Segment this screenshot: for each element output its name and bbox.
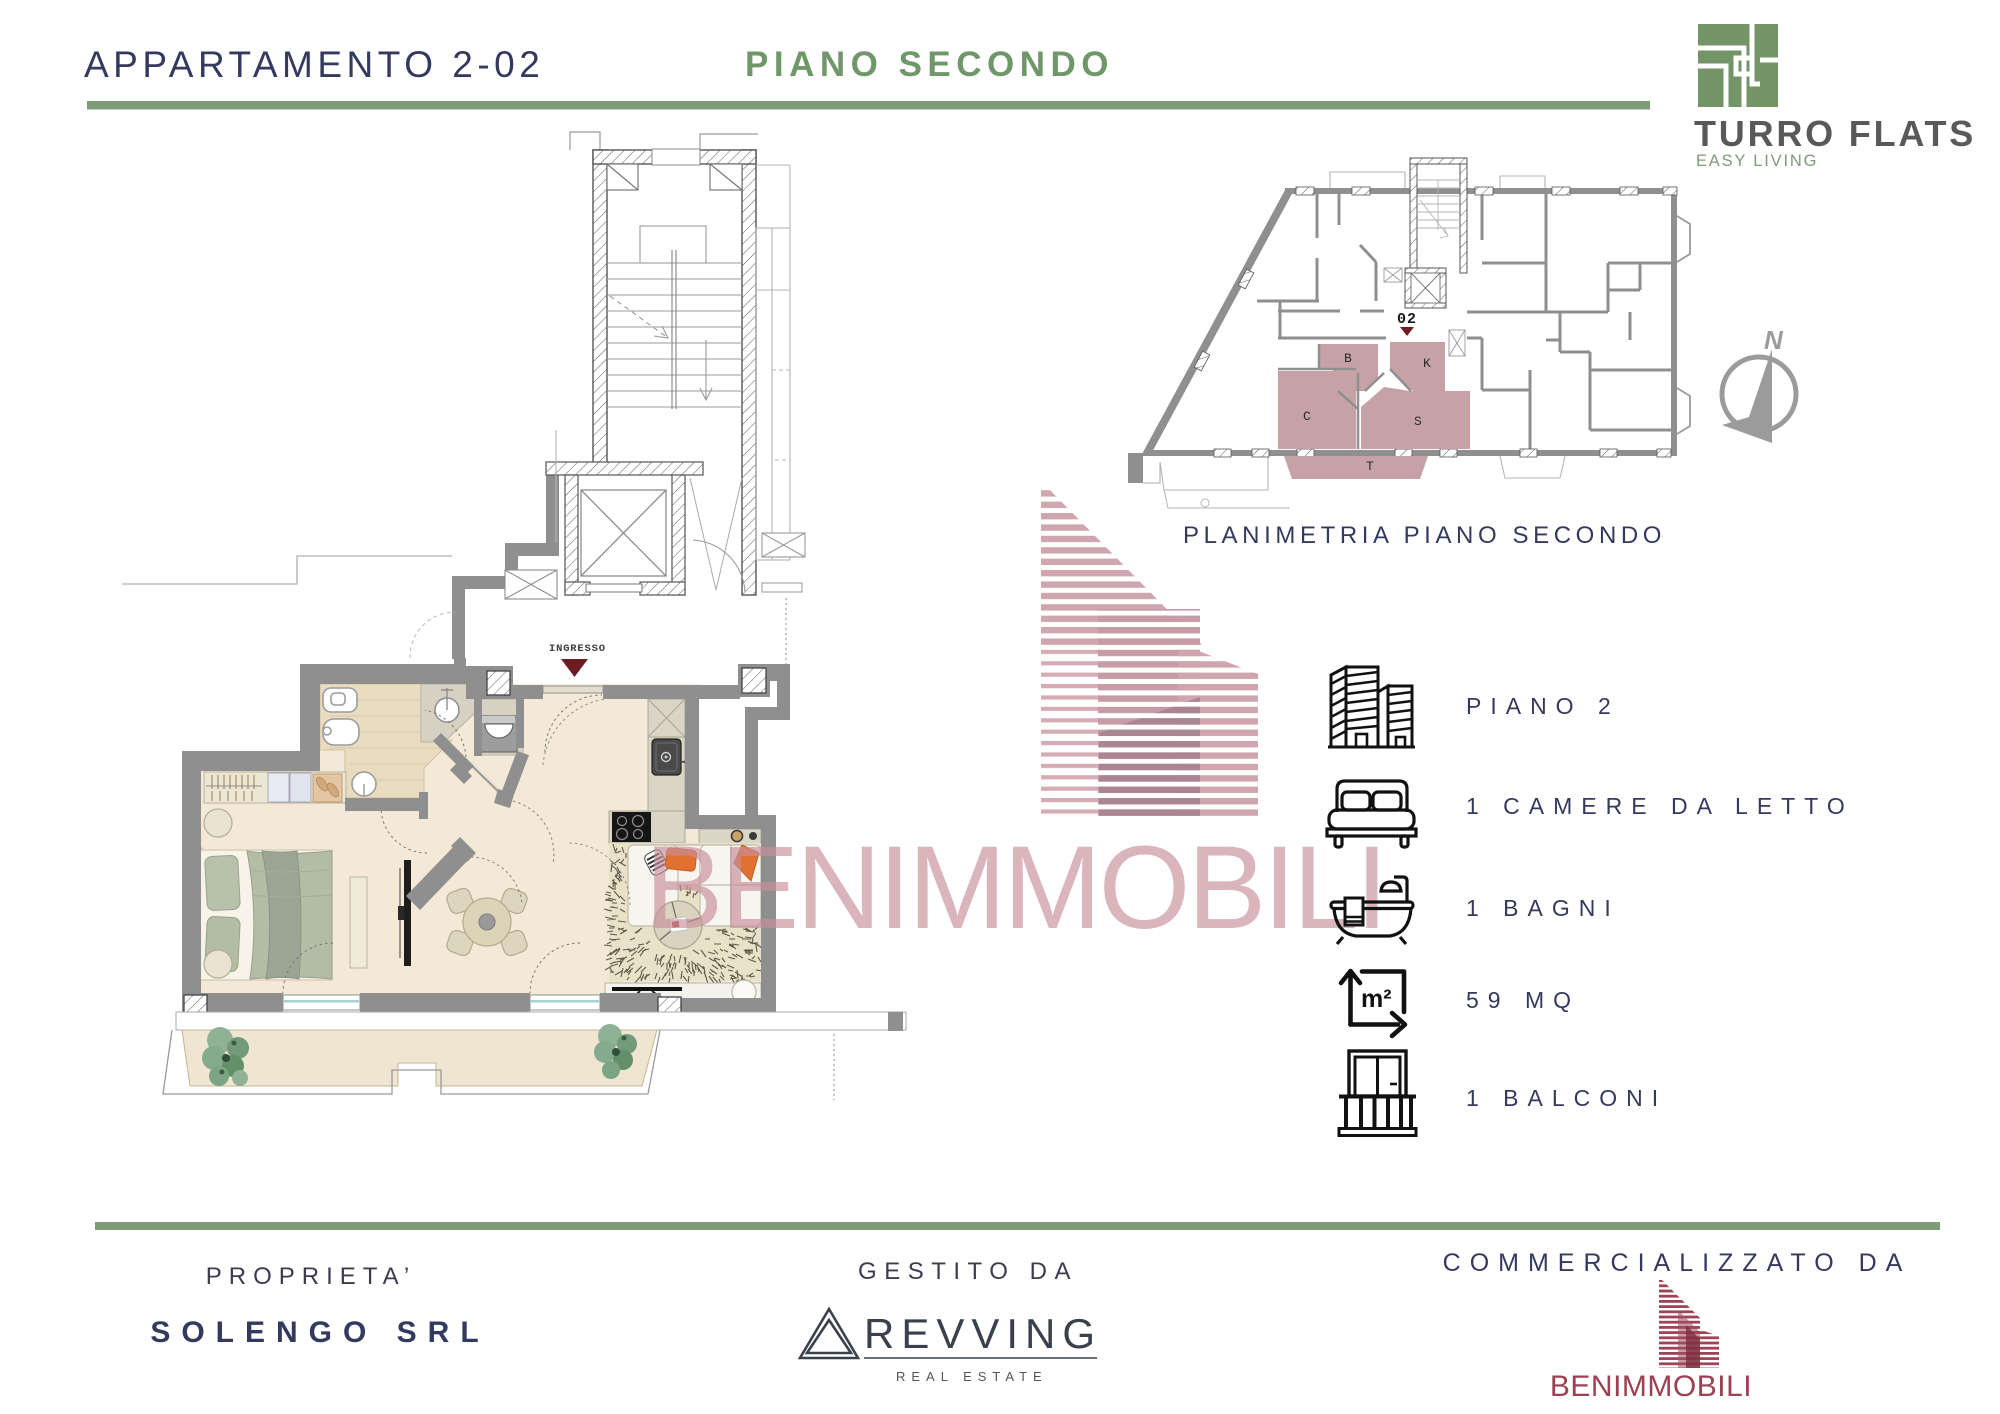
svg-text:GESTITO DA: GESTITO DA [858,1258,1078,1285]
svg-text:1 BAGNI: 1 BAGNI [1466,895,1620,921]
svg-text:TURRO FLATS: TURRO FLATS [1694,113,1976,154]
svg-text:m²: m² [1361,985,1392,1013]
svg-text:REVVING: REVVING [864,1310,1102,1357]
svg-text:PLANIMETRIA PIANO SECONDO: PLANIMETRIA PIANO SECONDO [1183,522,1666,549]
svg-text:BENIMMOBILI: BENIMMOBILI [1550,1370,1752,1403]
svg-text:INGRESSO: INGRESSO [549,643,606,655]
svg-text:SOLENGO SRL: SOLENGO SRL [150,1316,489,1349]
svg-text:S: S [1414,414,1422,429]
svg-text:PIANO 2: PIANO 2 [1466,693,1620,719]
svg-text:B: B [1344,351,1352,366]
svg-text:K: K [1423,356,1431,371]
svg-text:1 BALCONI: 1 BALCONI [1466,1085,1667,1111]
svg-text:1 CAMERE DA LETTO: 1 CAMERE DA LETTO [1466,793,1854,819]
svg-text:PROPRIETA’: PROPRIETA’ [206,1263,416,1290]
svg-text:C: C [1303,409,1311,424]
svg-text:COMMERCIALIZZATO DA: COMMERCIALIZZATO DA [1443,1249,1912,1277]
svg-text:02: 02 [1397,311,1417,328]
svg-text:N: N [1764,325,1784,355]
svg-text:REAL ESTATE: REAL ESTATE [896,1369,1048,1384]
svg-text:T: T [1366,459,1374,474]
svg-text:APPARTAMENTO 2-02: APPARTAMENTO 2-02 [84,44,544,85]
svg-text:59 MQ: 59 MQ [1466,987,1580,1013]
svg-text:BENIMMOBILI: BENIMMOBILI [645,822,1386,954]
svg-text:PIANO SECONDO: PIANO SECONDO [745,45,1114,84]
svg-text:EASY LIVING: EASY LIVING [1696,152,1818,170]
